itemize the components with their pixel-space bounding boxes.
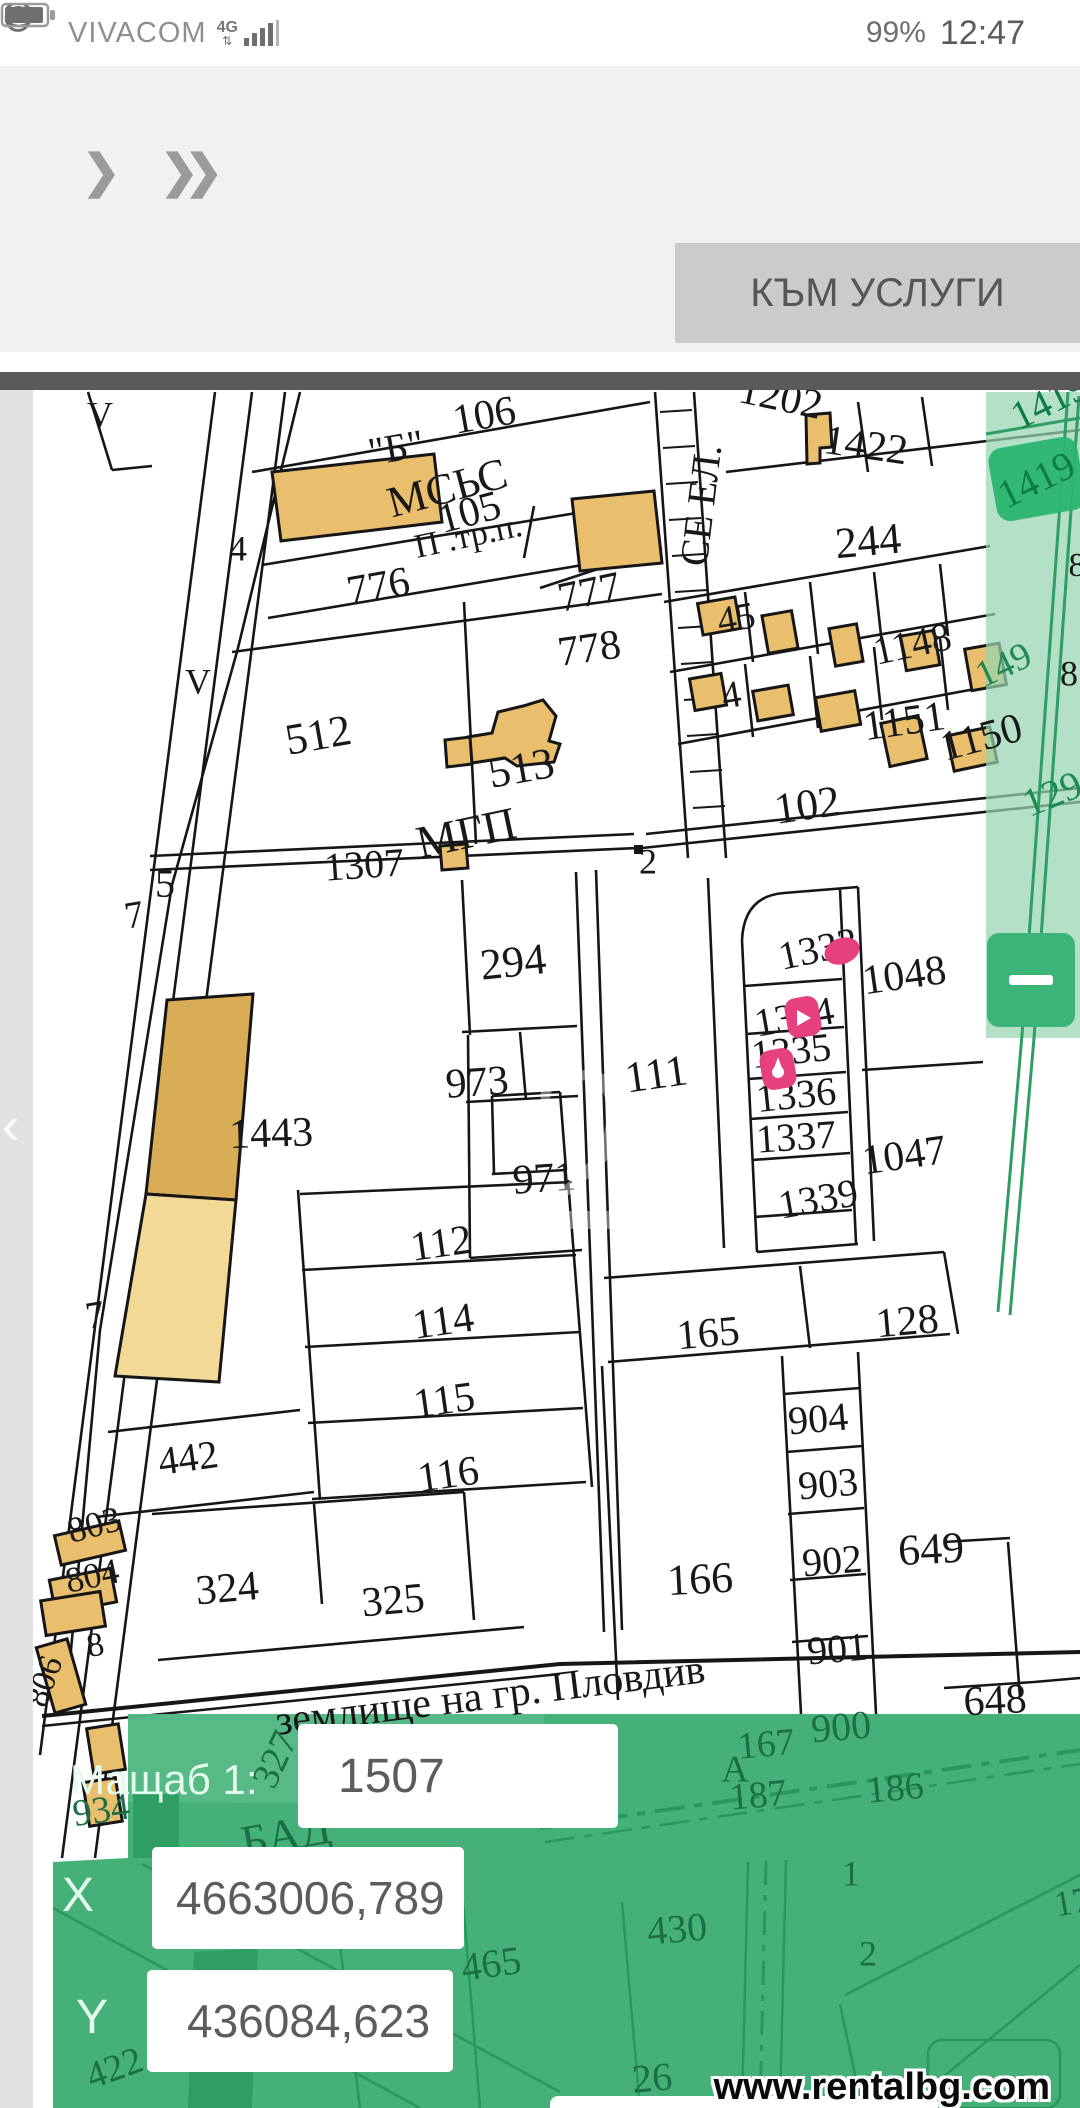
map-label: 1443 bbox=[228, 1109, 314, 1158]
map-label: 325 bbox=[360, 1575, 427, 1626]
map-label: 1 bbox=[842, 1854, 860, 1894]
status-bar: VIVACOM 4G ⇅ 99% 12:47 bbox=[0, 0, 1080, 66]
map-label: "Б" bbox=[365, 421, 428, 475]
map-label: 1307 bbox=[323, 839, 406, 889]
y-input[interactable]: 436084,623 bbox=[147, 1970, 453, 2072]
map-label: 902 bbox=[800, 1535, 864, 1585]
map-label: 465 bbox=[458, 1937, 524, 1990]
map-label: 648 bbox=[962, 1676, 1027, 1725]
map-label: 5 bbox=[155, 861, 175, 906]
map-label: 1337 bbox=[755, 1111, 838, 1161]
map-label: 102 bbox=[771, 776, 843, 834]
map-label: 294 bbox=[478, 934, 549, 990]
y-label: Y bbox=[76, 1990, 108, 2045]
back-chevron-icon[interactable]: ‹ bbox=[2, 1100, 19, 1152]
battery-icon bbox=[0, 0, 58, 30]
map-label: 900 bbox=[809, 1701, 873, 1751]
network-type-icon: 4G ⇅ bbox=[217, 20, 238, 47]
forward-icon[interactable]: ❯ bbox=[82, 144, 121, 198]
map-label: 324 bbox=[194, 1563, 261, 1614]
map-label: 430 bbox=[645, 1903, 709, 1953]
left-edge-strip: ‹ bbox=[0, 390, 33, 2108]
services-button[interactable]: КЪМ УСЛУГИ bbox=[675, 243, 1080, 343]
map-label: 186 bbox=[865, 1765, 925, 1812]
map-label: 187 bbox=[728, 1772, 788, 1819]
map-label: 165 bbox=[675, 1308, 742, 1359]
map-label: V bbox=[87, 395, 113, 435]
map-label: 2 bbox=[639, 842, 657, 882]
map-label: 45 bbox=[714, 594, 759, 642]
map-label: 8 bbox=[1069, 547, 1080, 584]
battery-percent: 99% bbox=[866, 16, 926, 50]
map-label: 8 bbox=[1060, 654, 1078, 694]
zoom-out-button[interactable] bbox=[987, 933, 1075, 1027]
map-label: 4 bbox=[229, 529, 247, 569]
map-label: 904 bbox=[786, 1393, 850, 1443]
map-label: 778 bbox=[555, 622, 624, 676]
map-top-bar bbox=[0, 372, 1080, 390]
map-label: 112 bbox=[408, 1217, 475, 1271]
map-label: 649 bbox=[897, 1523, 965, 1575]
scale-input[interactable]: 1507 bbox=[298, 1724, 618, 1828]
x-label: X bbox=[62, 1868, 94, 1923]
carrier-label: VIVACOM bbox=[68, 17, 207, 50]
map-label: 2 bbox=[859, 1934, 877, 1974]
map-label: 128 bbox=[874, 1296, 941, 1347]
forward-double-icon[interactable]: ❯❯ bbox=[160, 144, 240, 198]
map-label: 244 bbox=[833, 514, 903, 569]
map-label: 901 bbox=[805, 1623, 869, 1673]
map-label: 2 bbox=[525, 1015, 645, 1281]
toolbar: ❯ ❯❯ КЪМ УСЛУГИ bbox=[0, 66, 1080, 352]
signal-bars-icon bbox=[244, 20, 279, 46]
map-label: 115 bbox=[411, 1374, 478, 1428]
site-watermark: www.rentalbg.com bbox=[714, 2066, 1050, 2108]
map-viewport[interactable]: "Б"106МСЬС105П .тр.п.7767777781202142224… bbox=[0, 390, 1080, 2108]
map-label: 973 bbox=[444, 1058, 510, 1108]
map-label: V bbox=[185, 662, 211, 702]
minus-icon bbox=[1009, 975, 1053, 985]
clock: 12:47 bbox=[940, 14, 1025, 53]
x-input[interactable]: 4663006,789 bbox=[152, 1847, 464, 1949]
gap bbox=[0, 352, 1080, 372]
map-label: 442 bbox=[155, 1431, 221, 1484]
map-label: 903 bbox=[796, 1458, 860, 1508]
map-label: 166 bbox=[666, 1553, 734, 1605]
map-label: 116 bbox=[415, 1448, 482, 1502]
scale-label: Мащаб 1: bbox=[70, 1756, 257, 1804]
map-label: 114 bbox=[410, 1295, 477, 1349]
map-label: 26 bbox=[630, 2053, 674, 2101]
